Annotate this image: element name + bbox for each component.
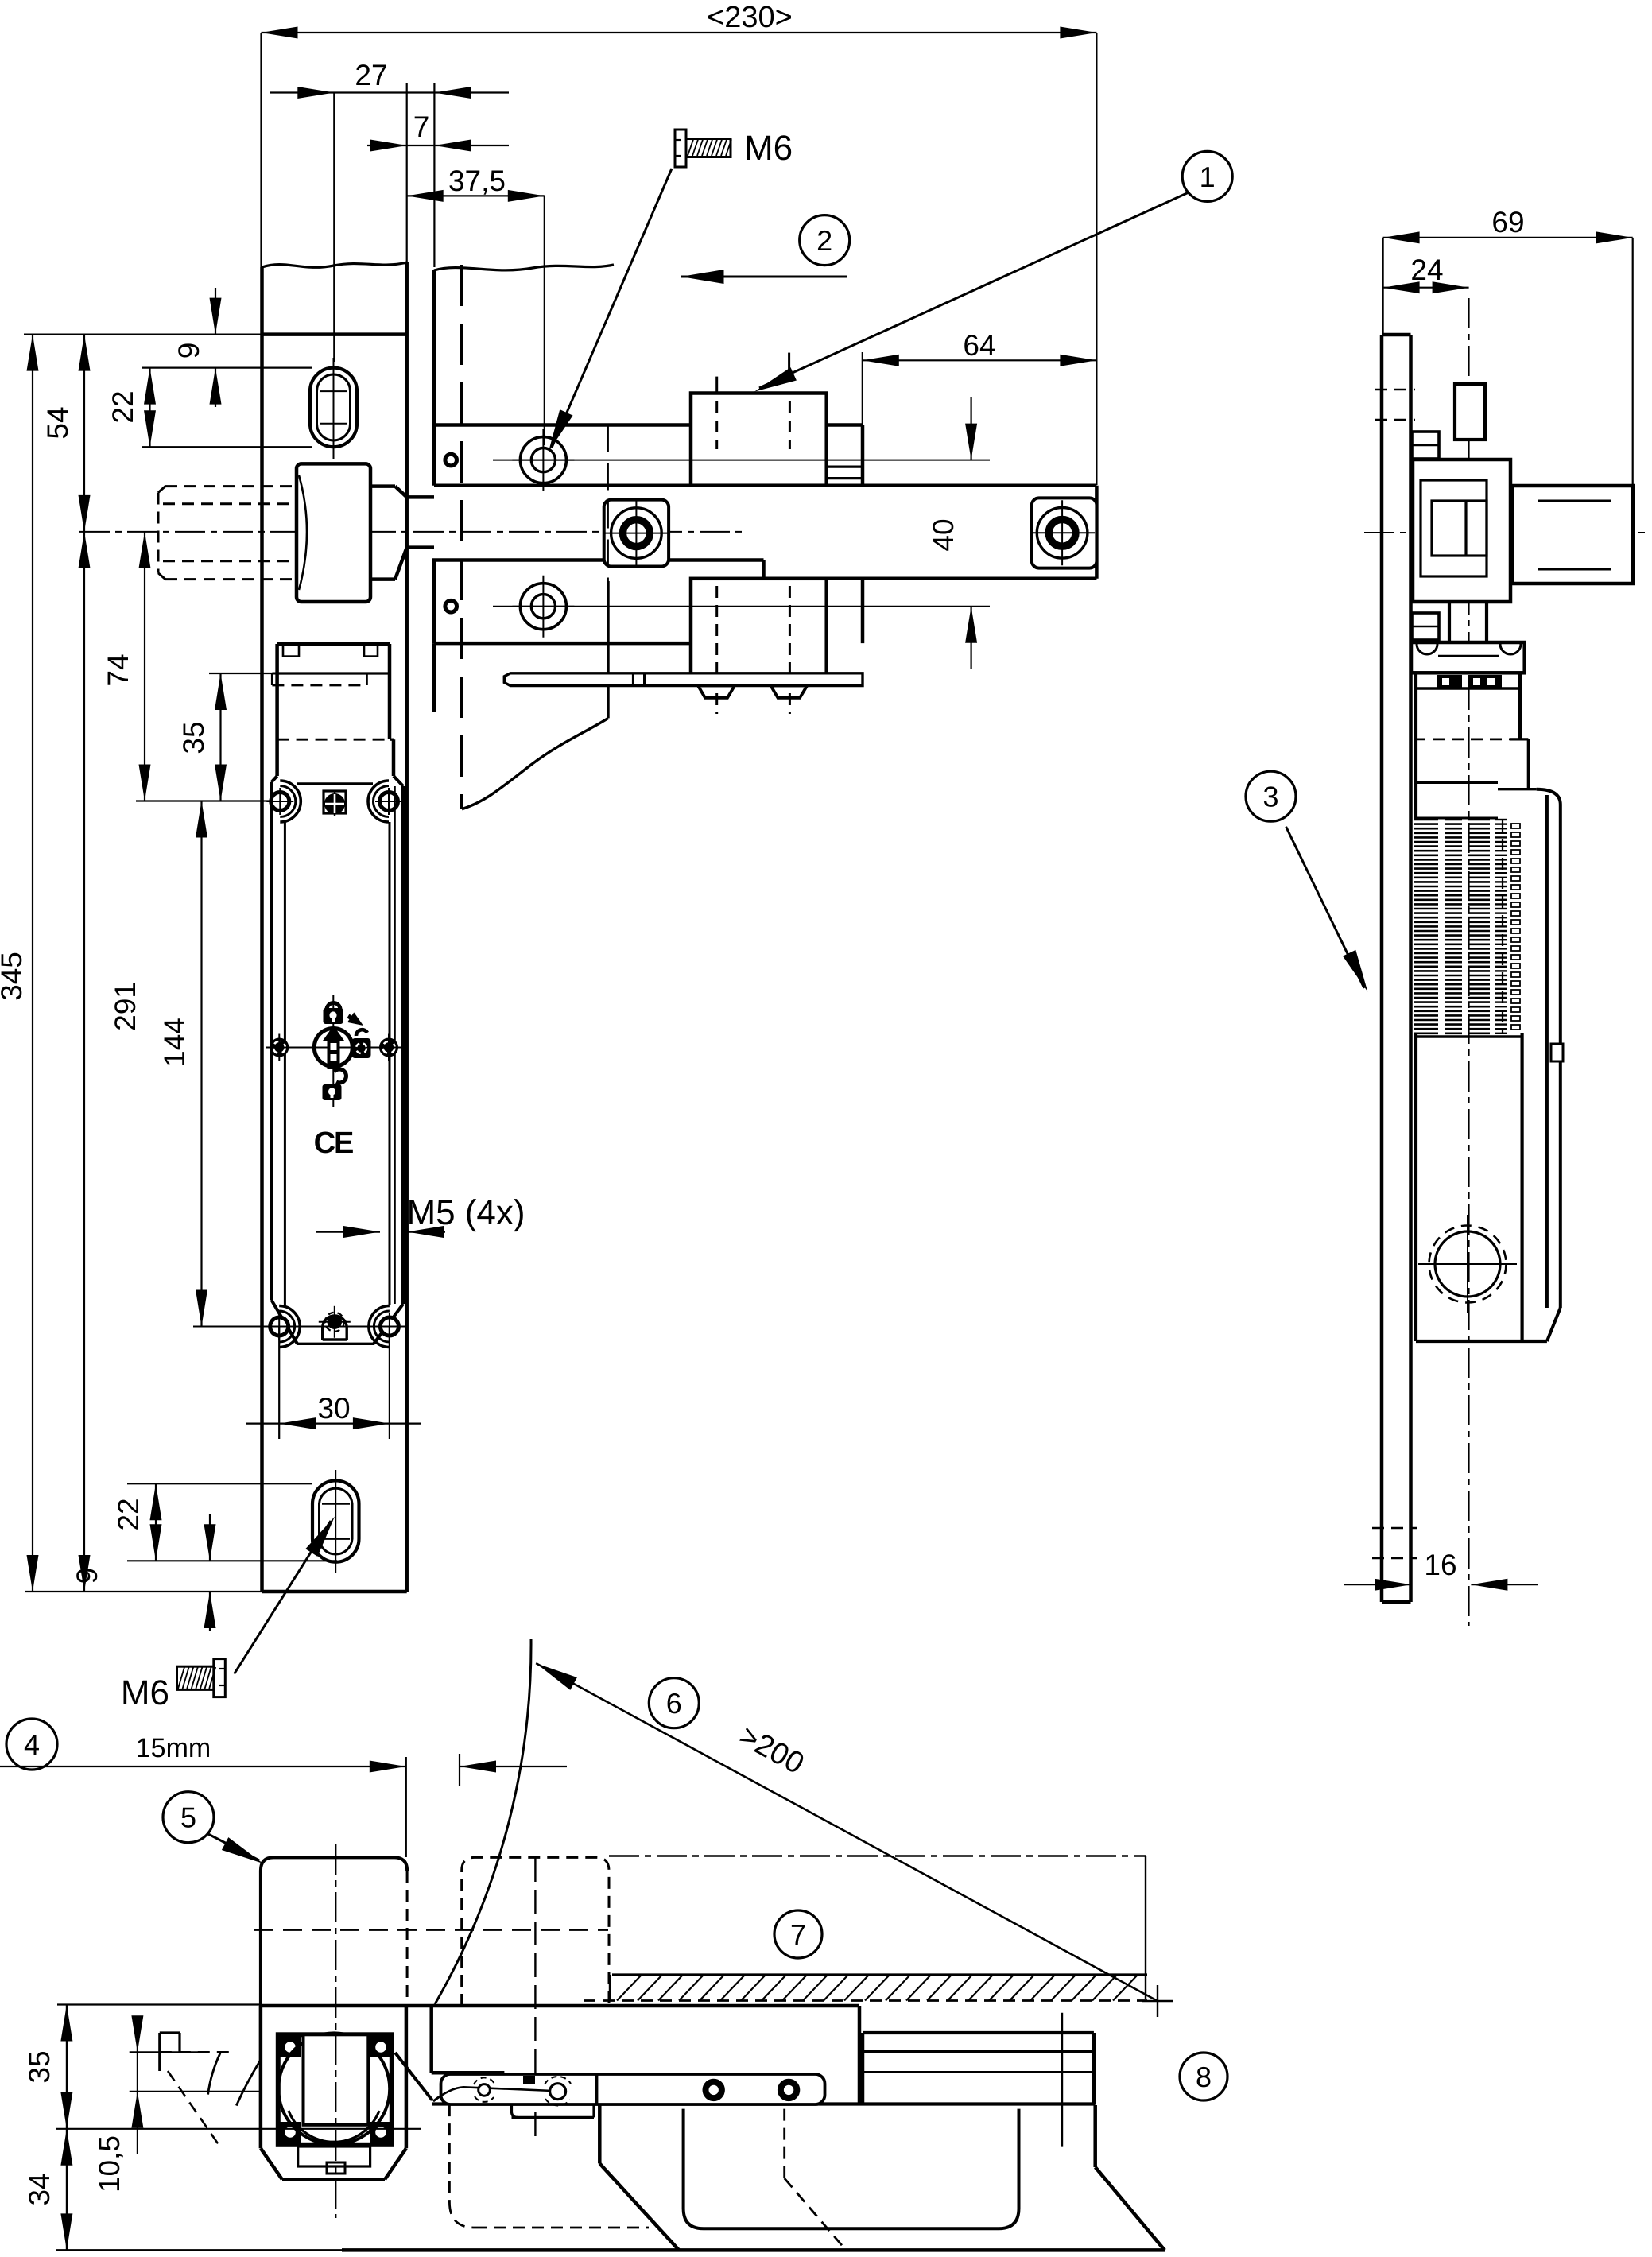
svg-text:5: 5 <box>180 1801 196 1833</box>
svg-text:2: 2 <box>816 224 832 257</box>
svg-text:8: 8 <box>1196 2061 1212 2093</box>
svg-text:M5 (4x): M5 (4x) <box>406 1193 525 1232</box>
svg-text:9: 9 <box>173 343 205 359</box>
svg-text:16: 16 <box>1424 1549 1456 1581</box>
svg-text:9: 9 <box>71 1568 103 1584</box>
svg-text:37,5: 37,5 <box>448 165 506 197</box>
svg-text:54: 54 <box>41 406 74 439</box>
svg-text:10,5: 10,5 <box>93 2135 126 2193</box>
svg-text:7: 7 <box>413 111 430 143</box>
svg-text:64: 64 <box>963 329 995 362</box>
svg-text:27: 27 <box>355 59 387 91</box>
svg-text:144: 144 <box>158 1018 191 1067</box>
svg-text:M6: M6 <box>744 129 793 168</box>
svg-text:40: 40 <box>927 518 960 551</box>
svg-text:291: 291 <box>109 982 142 1031</box>
svg-text:69: 69 <box>1491 206 1524 238</box>
svg-text:30: 30 <box>317 1392 350 1425</box>
svg-text:4: 4 <box>24 1728 40 1761</box>
svg-text:CE: CE <box>314 1127 353 1160</box>
svg-text:74: 74 <box>102 653 134 686</box>
svg-text:6: 6 <box>666 1687 682 1720</box>
svg-text:15mm: 15mm <box>136 1733 211 1763</box>
svg-text:35: 35 <box>177 721 210 754</box>
svg-text:35: 35 <box>23 2050 56 2083</box>
svg-text:M6: M6 <box>121 1673 169 1712</box>
svg-text:22: 22 <box>107 390 139 423</box>
svg-text:1: 1 <box>1200 161 1216 193</box>
svg-text:<230>: <230> <box>707 1 793 34</box>
svg-text:7: 7 <box>790 1918 806 1951</box>
svg-text:345: 345 <box>0 952 28 1001</box>
svg-text:22: 22 <box>112 1498 145 1530</box>
svg-text:34: 34 <box>23 2173 56 2205</box>
svg-text:24: 24 <box>1410 254 1443 286</box>
svg-text:3: 3 <box>1262 780 1278 812</box>
